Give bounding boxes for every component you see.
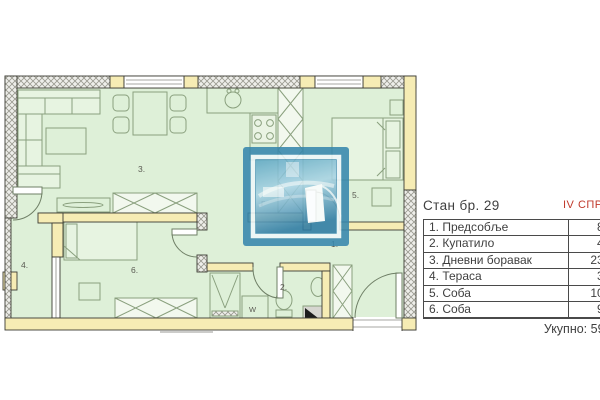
watermark-shape-a (286, 162, 299, 177)
entrance-opening (353, 317, 402, 331)
room-area: 10, (568, 286, 600, 301)
watermark-shape-b (263, 187, 284, 197)
rooms-table: 1. Предсобље 8, 2. Купатило 4, 3. Дневни… (423, 219, 600, 319)
panel-header: Стан бр. 29 IV СПРАТ (423, 197, 600, 217)
wardrobe-bottom (115, 298, 197, 318)
room-area: 8, (568, 220, 600, 235)
wardrobe-hall (333, 265, 352, 318)
room-area: 23, (568, 253, 600, 268)
room-name: 4. Тераса (424, 269, 568, 284)
label-bedroom5: 5. (352, 190, 359, 200)
room-area: 4, (568, 236, 600, 251)
info-panel: Стан бр. 29 IV СПРАТ 1. Предсобље 8, 2. … (423, 197, 600, 336)
watermark-door (305, 184, 325, 223)
wardrobe-living (113, 193, 197, 213)
total-area: Укупно: 59, (423, 322, 600, 336)
label-living: 3. (138, 164, 145, 174)
window-living (110, 76, 198, 88)
label-washer: W (249, 305, 257, 314)
floorplan-page: 3. 5. 4. 6. 2. 1. W Г Стан бр. 29 IV СПР… (0, 0, 600, 400)
room-name: 6. Соба (424, 302, 568, 317)
table-row: 5. Соба 10, (424, 285, 600, 301)
floor-label: IV СПРАТ (563, 199, 600, 211)
room-area: 9, (568, 302, 600, 317)
label-terrace: 4. (21, 260, 28, 270)
room-name: 3. Дневни боравак (424, 253, 568, 268)
window-bedroom (300, 76, 381, 88)
table-row: 3. Дневни боравак 23, (424, 252, 600, 268)
room-name: 2. Купатило (424, 236, 568, 251)
room-name: 5. Соба (424, 286, 568, 301)
apartment-title: Стан бр. 29 (423, 198, 500, 213)
room-area: 3, (568, 269, 600, 284)
terrace-window (52, 257, 60, 318)
table-row: 1. Предсобље 8, (424, 220, 600, 235)
table-row: 6. Соба 9, (424, 301, 600, 317)
table-row: 4. Тераса 3, (424, 268, 600, 284)
table-row: 2. Купатило 4, (424, 235, 600, 251)
room-name: 1. Предсобље (424, 220, 568, 235)
label-bedroom6: 6. (131, 265, 138, 275)
bed-single (64, 222, 137, 260)
label-bathroom: 2. (280, 282, 287, 292)
watermark-logo (243, 147, 349, 246)
